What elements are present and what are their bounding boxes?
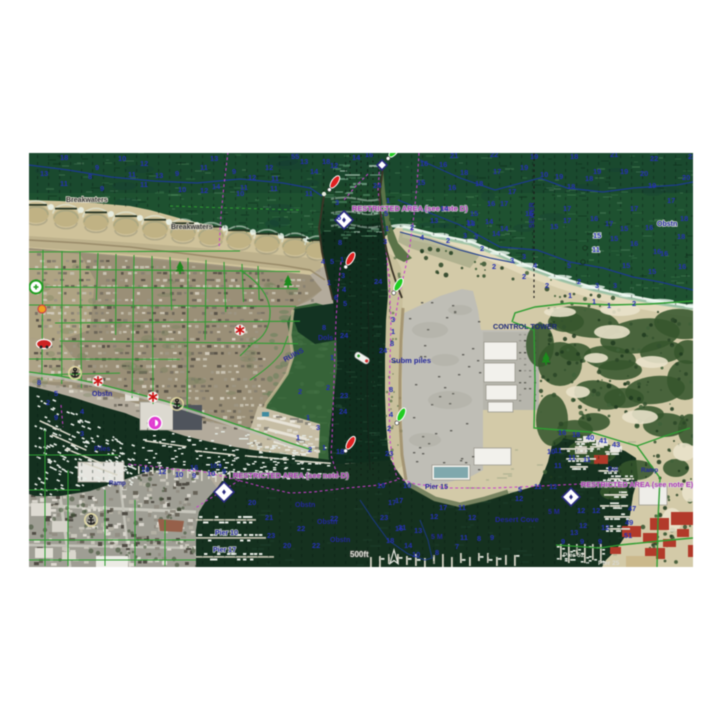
svg-text:15: 15: [620, 224, 628, 233]
svg-text:2: 2: [480, 244, 484, 253]
svg-text:8: 8: [37, 378, 41, 387]
svg-text:9: 9: [580, 537, 584, 546]
svg-text:5: 5: [337, 213, 341, 222]
svg-text:11: 11: [140, 180, 148, 189]
svg-text:Breakwaters: Breakwaters: [171, 224, 213, 231]
svg-text:11: 11: [60, 179, 68, 188]
svg-text:18: 18: [322, 157, 330, 166]
svg-text:9: 9: [100, 184, 104, 193]
svg-text:12: 12: [601, 523, 609, 532]
svg-text:11: 11: [271, 174, 279, 183]
svg-text:3: 3: [613, 281, 617, 290]
svg-text:13: 13: [155, 171, 163, 180]
svg-text:RESTRICTED AREA (see note D): RESTRICTED AREA (see note D): [233, 471, 349, 480]
svg-text:Pier 52: Pier 52: [563, 552, 585, 559]
svg-text:1: 1: [296, 433, 300, 442]
svg-text:17: 17: [493, 167, 501, 176]
svg-text:8: 8: [389, 385, 393, 394]
svg-text:9: 9: [561, 537, 565, 546]
svg-text:22: 22: [312, 541, 320, 550]
svg-text:18: 18: [572, 430, 580, 439]
svg-text:14: 14: [352, 153, 361, 162]
svg-text:RESTRICTED AREA (see note D): RESTRICTED AREA (see note D): [352, 204, 468, 213]
svg-text:12: 12: [430, 512, 438, 521]
svg-text:15: 15: [417, 178, 425, 187]
svg-text:1: 1: [386, 196, 390, 205]
svg-text:1: 1: [330, 353, 334, 362]
svg-text:10: 10: [403, 481, 411, 490]
svg-text:12: 12: [200, 186, 208, 195]
svg-text:9: 9: [222, 467, 226, 476]
svg-text:24: 24: [373, 181, 382, 190]
svg-text:10: 10: [547, 447, 555, 456]
svg-text:24: 24: [374, 277, 383, 286]
svg-text:Obstn: Obstn: [92, 391, 112, 398]
svg-text:13: 13: [300, 157, 308, 166]
svg-text:13: 13: [210, 154, 218, 163]
svg-text:3: 3: [510, 256, 514, 265]
svg-text:1: 1: [340, 255, 344, 264]
svg-text:55: 55: [291, 152, 299, 161]
svg-text:16: 16: [420, 159, 428, 168]
svg-text:17: 17: [563, 216, 571, 225]
svg-text:18: 18: [460, 168, 468, 177]
svg-text:16: 16: [190, 463, 198, 472]
svg-text:14: 14: [212, 182, 221, 191]
svg-text:2: 2: [577, 277, 581, 286]
svg-text:16: 16: [439, 160, 447, 169]
svg-text:11: 11: [592, 245, 600, 254]
svg-text:500ft: 500ft: [350, 550, 369, 559]
svg-text:10: 10: [377, 481, 385, 490]
svg-text:19: 19: [520, 163, 528, 172]
svg-text:19: 19: [530, 152, 538, 161]
svg-text:19: 19: [555, 172, 563, 181]
svg-text:Obstn: Obstn: [657, 221, 677, 228]
svg-text:Ramp: Ramp: [641, 467, 658, 474]
svg-text:9: 9: [192, 471, 196, 480]
svg-text:10: 10: [540, 170, 548, 179]
svg-text:23: 23: [267, 531, 275, 540]
svg-text:16: 16: [645, 223, 653, 232]
svg-text:Pier 17: Pier 17: [213, 547, 236, 554]
svg-text:16: 16: [630, 239, 638, 248]
svg-text:2: 2: [522, 272, 526, 281]
svg-text:24: 24: [339, 407, 348, 416]
svg-text:3: 3: [391, 315, 395, 324]
svg-text:12: 12: [248, 173, 256, 182]
svg-text:10.9: 10.9: [210, 464, 222, 470]
svg-text:11: 11: [583, 455, 591, 464]
svg-text:17: 17: [500, 199, 508, 208]
svg-text:5: 5: [384, 209, 388, 218]
svg-text:1: 1: [391, 327, 395, 336]
svg-text:2: 2: [410, 223, 414, 232]
svg-text:3: 3: [316, 423, 320, 432]
svg-text:10: 10: [141, 465, 149, 474]
svg-text:2: 2: [308, 445, 312, 454]
svg-text:3: 3: [383, 237, 387, 246]
svg-text:16: 16: [525, 209, 533, 218]
svg-text:2: 2: [492, 262, 496, 271]
svg-text:20: 20: [283, 541, 291, 550]
svg-text:11: 11: [554, 461, 562, 470]
svg-text:7: 7: [455, 542, 459, 551]
svg-text:2: 2: [446, 236, 450, 245]
svg-text:12: 12: [592, 506, 600, 515]
svg-text:5: 5: [54, 389, 58, 398]
svg-text:1: 1: [592, 297, 596, 306]
svg-text:13: 13: [570, 528, 578, 537]
svg-text:19: 19: [593, 167, 601, 176]
svg-text:16: 16: [558, 428, 566, 437]
svg-text:Subm piles: Subm piles: [391, 356, 431, 365]
svg-text:Piles: Piles: [94, 446, 110, 453]
svg-text:23: 23: [385, 449, 393, 458]
svg-text:22: 22: [650, 154, 658, 163]
svg-text:1: 1: [607, 301, 611, 310]
svg-text:24: 24: [379, 346, 388, 355]
svg-text:21: 21: [265, 513, 273, 522]
svg-text:49: 49: [625, 518, 633, 527]
svg-text:3: 3: [80, 429, 84, 438]
svg-text:9: 9: [175, 169, 179, 178]
svg-text:9: 9: [232, 167, 236, 176]
svg-text:RESTRICTED AREA (see note E): RESTRICTED AREA (see note E): [581, 480, 694, 489]
svg-text:18: 18: [567, 182, 575, 191]
svg-text:15: 15: [610, 234, 618, 243]
svg-text:15: 15: [648, 267, 656, 276]
svg-text:12: 12: [515, 494, 523, 503]
svg-text:18: 18: [60, 153, 68, 162]
svg-text:9: 9: [598, 537, 602, 546]
svg-text:3: 3: [463, 231, 467, 240]
svg-text:12: 12: [330, 161, 338, 170]
svg-text:5: 5: [330, 257, 334, 266]
svg-text:16: 16: [487, 199, 495, 208]
svg-text:6: 6: [334, 293, 338, 302]
svg-text:20: 20: [248, 498, 256, 507]
svg-text:23: 23: [340, 391, 348, 400]
svg-text:2: 2: [298, 387, 302, 396]
svg-text:8: 8: [322, 323, 326, 332]
svg-text:Obstn: Obstn: [330, 537, 350, 544]
svg-text:18: 18: [677, 232, 685, 241]
svg-text:1: 1: [385, 224, 389, 233]
svg-text:18: 18: [386, 536, 394, 545]
svg-text:13: 13: [414, 526, 422, 535]
svg-text:13: 13: [40, 169, 48, 178]
svg-text:11: 11: [128, 170, 136, 179]
svg-text:3: 3: [474, 232, 478, 241]
svg-text:17: 17: [605, 219, 613, 228]
svg-text:Obstn: Obstn: [295, 502, 315, 509]
svg-text:3: 3: [595, 281, 599, 290]
svg-text:9: 9: [54, 413, 58, 422]
svg-text:16: 16: [590, 214, 598, 223]
svg-text:2: 2: [632, 299, 636, 308]
svg-text:Pier 10: Pier 10: [215, 530, 238, 537]
svg-text:14: 14: [500, 224, 509, 233]
svg-text:5: 5: [567, 261, 571, 270]
svg-text:Dols: Dols: [318, 335, 333, 342]
svg-text:16: 16: [678, 262, 686, 271]
svg-text:5 M: 5 M: [548, 509, 560, 516]
svg-text:17: 17: [667, 196, 675, 205]
svg-text:23: 23: [380, 513, 388, 522]
svg-text:17: 17: [439, 503, 447, 512]
svg-text:18: 18: [570, 152, 578, 161]
svg-text:18: 18: [475, 179, 483, 188]
svg-text:12: 12: [468, 513, 476, 522]
svg-text:22: 22: [330, 514, 338, 523]
svg-text:11: 11: [458, 503, 466, 512]
svg-text:5: 5: [518, 485, 522, 494]
svg-text:10: 10: [412, 550, 420, 559]
svg-text:9: 9: [490, 533, 494, 542]
svg-text:20: 20: [640, 169, 648, 178]
svg-text:17: 17: [630, 204, 638, 213]
svg-text:Dol: Dol: [608, 466, 618, 473]
svg-text:1: 1: [327, 278, 331, 287]
svg-text:15: 15: [622, 261, 630, 270]
svg-text:11: 11: [568, 453, 576, 462]
svg-text:18: 18: [336, 447, 344, 456]
svg-text:11: 11: [466, 218, 474, 227]
svg-text:10: 10: [207, 469, 215, 478]
svg-text:11: 11: [460, 533, 468, 542]
svg-text:14: 14: [310, 167, 319, 176]
svg-text:2: 2: [46, 398, 50, 407]
svg-text:3: 3: [341, 271, 345, 280]
svg-text:5: 5: [343, 299, 347, 308]
svg-text:19: 19: [648, 181, 656, 190]
svg-text:8: 8: [477, 534, 481, 543]
svg-text:11: 11: [305, 189, 313, 198]
svg-text:Pier 15: Pier 15: [425, 484, 448, 491]
svg-text:17: 17: [395, 496, 403, 505]
svg-text:41: 41: [599, 436, 607, 445]
svg-text:14: 14: [404, 541, 413, 550]
svg-text:3: 3: [522, 252, 526, 261]
svg-text:8: 8: [435, 548, 439, 557]
svg-text:CONTROL TOWER: CONTROL TOWER: [493, 322, 558, 331]
svg-text:17: 17: [508, 187, 516, 196]
svg-text:47: 47: [628, 504, 636, 513]
svg-text:10: 10: [178, 185, 186, 194]
svg-text:43: 43: [612, 440, 620, 449]
svg-text:51: 51: [624, 531, 632, 540]
svg-text:17: 17: [563, 204, 571, 213]
svg-text:2: 2: [326, 383, 330, 392]
svg-text:9: 9: [95, 163, 99, 172]
svg-text:5 M: 5 M: [431, 534, 443, 541]
svg-text:1: 1: [322, 443, 326, 452]
svg-text:24: 24: [340, 331, 349, 340]
svg-text:22: 22: [297, 524, 305, 533]
svg-text:12: 12: [579, 521, 587, 530]
svg-text:Breakwaters: Breakwaters: [66, 197, 108, 204]
svg-text:1: 1: [306, 413, 310, 422]
svg-text:12: 12: [549, 482, 557, 491]
svg-text:16: 16: [660, 249, 668, 258]
svg-text:2: 2: [387, 424, 391, 433]
svg-text:15: 15: [550, 222, 558, 231]
svg-text:3: 3: [335, 198, 339, 207]
svg-text:10: 10: [118, 154, 126, 163]
svg-text:15: 15: [593, 231, 601, 240]
svg-text:1: 1: [568, 291, 572, 300]
svg-text:16: 16: [448, 183, 456, 192]
svg-text:2: 2: [545, 281, 549, 290]
svg-text:13: 13: [430, 216, 438, 225]
svg-text:Ramp: Ramp: [109, 481, 126, 487]
svg-text:8: 8: [338, 238, 342, 247]
svg-text:15: 15: [470, 209, 478, 218]
svg-text:Pier 25: Pier 25: [598, 560, 620, 567]
svg-text:11: 11: [534, 482, 542, 491]
svg-text:8: 8: [390, 339, 394, 348]
svg-text:14: 14: [485, 217, 494, 226]
svg-text:Desert Cove: Desert Cove: [495, 515, 539, 524]
svg-text:18: 18: [585, 174, 593, 183]
svg-text:14: 14: [440, 204, 449, 213]
svg-text:11: 11: [200, 163, 208, 172]
svg-text:12: 12: [265, 163, 273, 172]
svg-text:40: 40: [586, 433, 594, 442]
svg-text:12: 12: [577, 506, 585, 515]
svg-text:20: 20: [682, 173, 690, 182]
svg-text:10: 10: [175, 470, 183, 479]
svg-text:12: 12: [140, 159, 148, 168]
svg-text:19: 19: [620, 167, 628, 176]
svg-text:10: 10: [236, 189, 244, 198]
svg-text:11: 11: [270, 184, 278, 193]
svg-text:16: 16: [395, 524, 403, 533]
svg-text:18: 18: [680, 214, 688, 223]
svg-text:12: 12: [158, 467, 166, 476]
svg-text:8: 8: [88, 172, 92, 181]
